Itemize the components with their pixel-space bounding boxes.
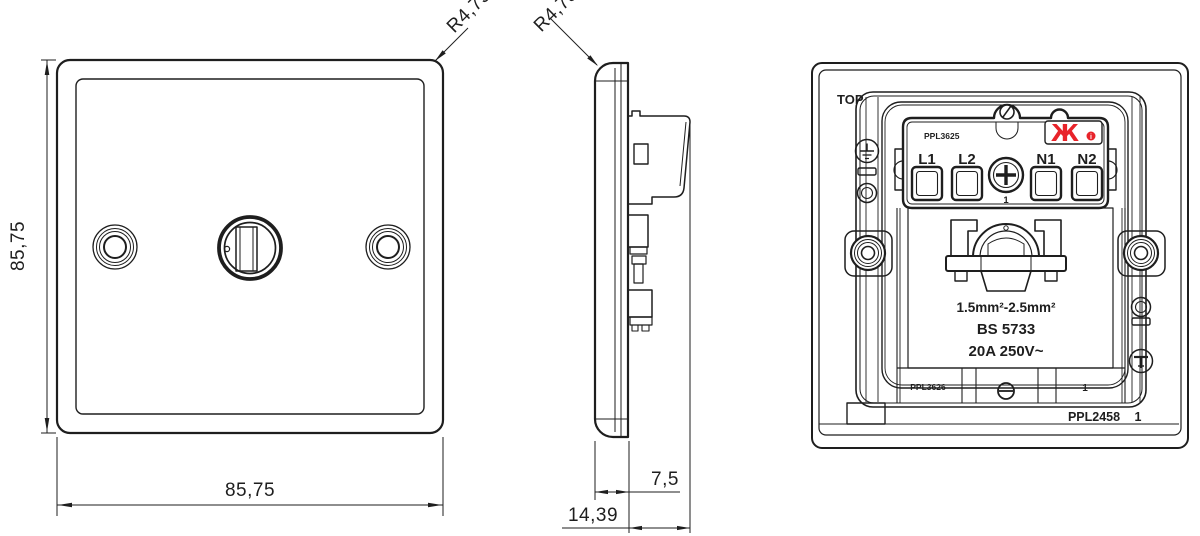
- terminal-n2: [1072, 167, 1102, 200]
- front-height-label: 85,75: [8, 221, 29, 271]
- terminal-l2: [952, 167, 982, 200]
- terminal-label-l1: L1: [918, 151, 936, 168]
- left-screw-flange: [858, 168, 876, 175]
- info-icon-glyph: i: [1090, 134, 1092, 141]
- side-view: 7,5 14,39 R4,75: [520, 0, 790, 536]
- cable-clamp: [946, 220, 1066, 291]
- front-plate-outline: [57, 60, 443, 433]
- terminal-n1: [1031, 167, 1061, 200]
- front-height-dimension: 85,75: [8, 60, 56, 433]
- front-radius-callout: R4,75: [435, 0, 495, 61]
- conductor-range-label: 1.5mm²-2.5mm²: [956, 300, 1056, 315]
- front-width-label: 85,75: [225, 480, 275, 501]
- side-mechanism: [628, 111, 690, 331]
- module-part-number-2: PPL3626: [910, 382, 946, 392]
- side-plate-depth-label: 7,5: [651, 469, 679, 490]
- front-plate-inner-edge: [76, 79, 424, 414]
- front-centre-outlet: [219, 217, 281, 279]
- right-screw-flange: [1132, 318, 1150, 325]
- terminal-l1: [912, 167, 942, 200]
- earth-symbol: [856, 140, 879, 163]
- plate-sheet-number: 1: [1135, 410, 1142, 424]
- terminal-label-n2: N2: [1077, 151, 1096, 168]
- standard-label: BS 5733: [977, 321, 1035, 338]
- side-plate-profile: [595, 63, 628, 437]
- rating-label: 20A 250V~: [969, 343, 1044, 360]
- centre-screw-number: 1: [1003, 195, 1009, 206]
- side-total-depth-dimension: 14,39: [562, 505, 690, 530]
- brand-logo-glyph: Ж: [1051, 121, 1079, 147]
- top-screw: [1000, 105, 1014, 119]
- side-total-depth-label: 14,39: [568, 505, 618, 526]
- terminal-label-l2: L2: [958, 151, 976, 168]
- right-small-screw: [1132, 298, 1151, 317]
- centre-screw: [989, 158, 1023, 192]
- front-view: 85,75 85,75 R4,75: [0, 0, 520, 536]
- right-pin-symbol: [1130, 350, 1153, 373]
- front-left-screw: [93, 225, 137, 269]
- terminal-label-n1: N1: [1036, 151, 1055, 168]
- orientation-label: TOP: [837, 92, 864, 107]
- side-radius-callout: R4,75: [530, 0, 598, 66]
- module-part-number: PPL3625: [924, 131, 960, 141]
- front-radius-label: R4,75: [443, 0, 495, 37]
- back-view: TOP PPL3625: [790, 0, 1200, 536]
- side-radius-label: R4,75: [530, 0, 582, 36]
- front-right-screw: [366, 225, 410, 269]
- terminal-block: PPL3625 Ж i L1 L2 N1 N2: [894, 105, 1117, 208]
- strip-cell-number: 1: [1082, 383, 1088, 394]
- front-width-dimension: 85,75: [57, 437, 443, 516]
- plate-part-number: PPL2458: [1068, 410, 1120, 424]
- brand-logo: Ж i: [1045, 121, 1102, 147]
- technical-drawing-sheet: 85,75 85,75 R4,75: [0, 0, 1200, 536]
